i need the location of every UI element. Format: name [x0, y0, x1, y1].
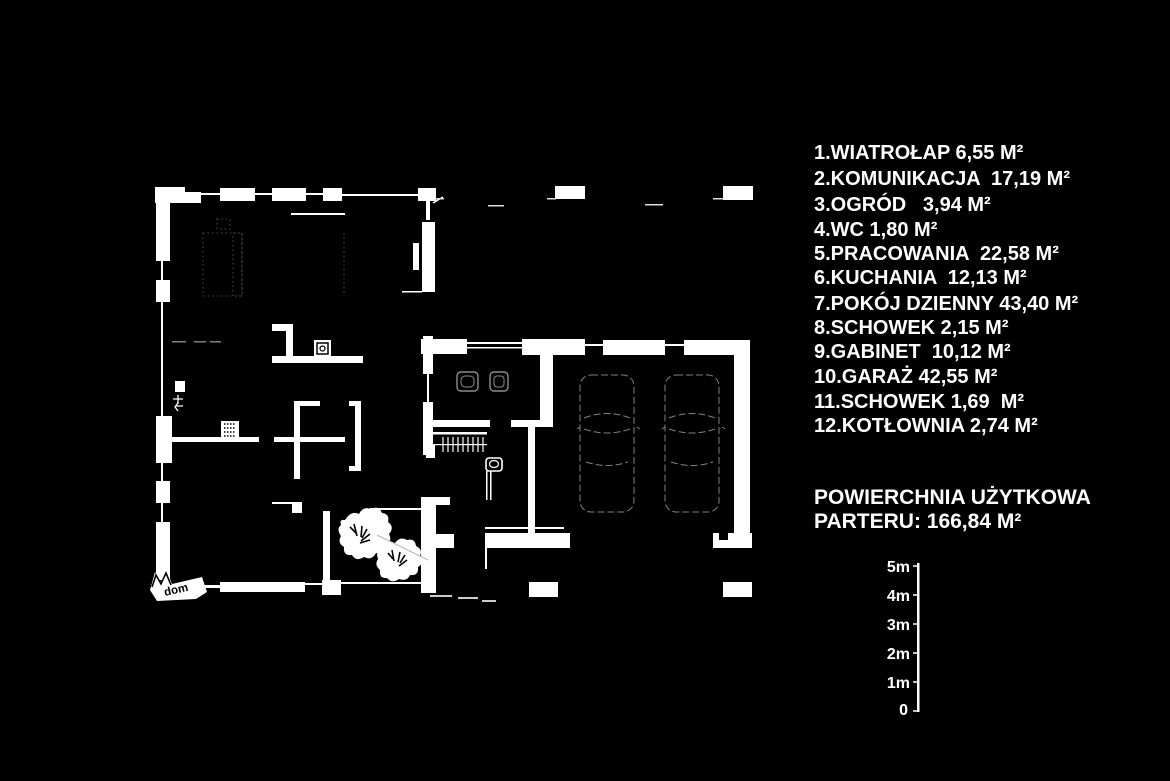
svg-text:PARTERU: 166,84 M²: PARTERU: 166,84 M²	[814, 510, 1021, 533]
svg-text:5.PRACOWANIA 22,58 M²: 5.PRACOWANIA 22,58 M²	[814, 243, 1059, 265]
svg-text:10.GARAŻ 42,55 M²: 10.GARAŻ 42,55 M²	[814, 365, 998, 388]
svg-text:0: 0	[899, 702, 908, 719]
svg-text:3m: 3m	[887, 617, 910, 634]
svg-text:4m: 4m	[887, 588, 910, 605]
svg-text:4.WC 1,80 M²: 4.WC 1,80 M²	[814, 219, 938, 241]
svg-text:8.SCHOWEK 2,15 M²: 8.SCHOWEK 2,15 M²	[814, 317, 1009, 339]
svg-text:9.GABINET 10,12 M²: 9.GABINET 10,12 M²	[814, 341, 1011, 363]
svg-text:1.WIATROŁAP 6,55 M²: 1.WIATROŁAP 6,55 M²	[814, 142, 1024, 164]
svg-text:12.KOTŁOWNIA 2,74 M²: 12.KOTŁOWNIA 2,74 M²	[814, 415, 1038, 437]
svg-text:2.KOMUNIKACJA 17,19 M²: 2.KOMUNIKACJA 17,19 M²	[814, 168, 1070, 190]
svg-text:1m: 1m	[887, 675, 910, 692]
svg-text:7.POKÓJ DZIENNY 43,40 M²: 7.POKÓJ DZIENNY 43,40 M²	[814, 291, 1079, 315]
svg-text:3.OGRÓD 3,94 M²: 3.OGRÓD 3,94 M²	[814, 192, 991, 216]
svg-text:POWIERCHNIA UŻYTKOWA: POWIERCHNIA UŻYTKOWA	[814, 486, 1091, 509]
svg-text:11.SCHOWEK 1,69 M²: 11.SCHOWEK 1,69 M²	[814, 391, 1024, 413]
svg-text:6.KUCHANIA 12,13 M²: 6.KUCHANIA 12,13 M²	[814, 267, 1027, 289]
svg-text:2m: 2m	[887, 646, 910, 663]
svg-text:5m: 5m	[887, 559, 910, 576]
